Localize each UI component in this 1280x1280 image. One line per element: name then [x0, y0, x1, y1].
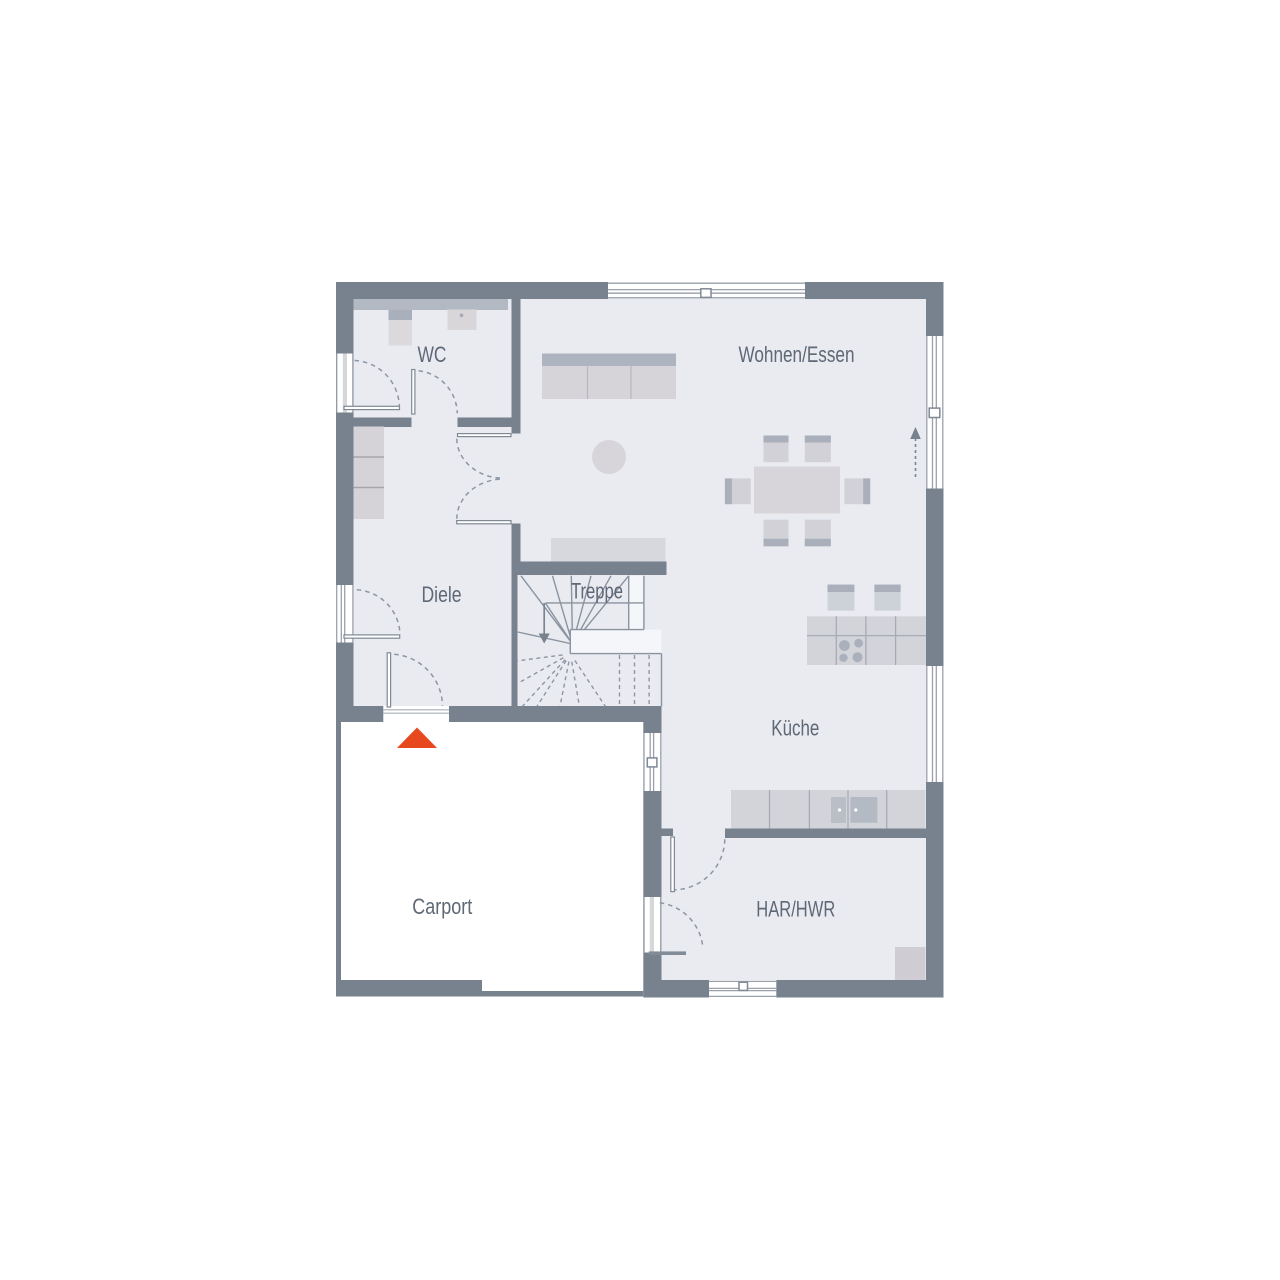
svg-text:Küche: Küche: [771, 715, 819, 740]
svg-text:Diele: Diele: [422, 582, 462, 607]
svg-text:Carport: Carport: [412, 894, 472, 919]
svg-text:Wohnen/Essen: Wohnen/Essen: [739, 342, 855, 367]
svg-text:Treppe: Treppe: [571, 578, 623, 603]
svg-text:HAR/HWR: HAR/HWR: [756, 896, 835, 921]
svg-text:WC: WC: [418, 342, 447, 367]
